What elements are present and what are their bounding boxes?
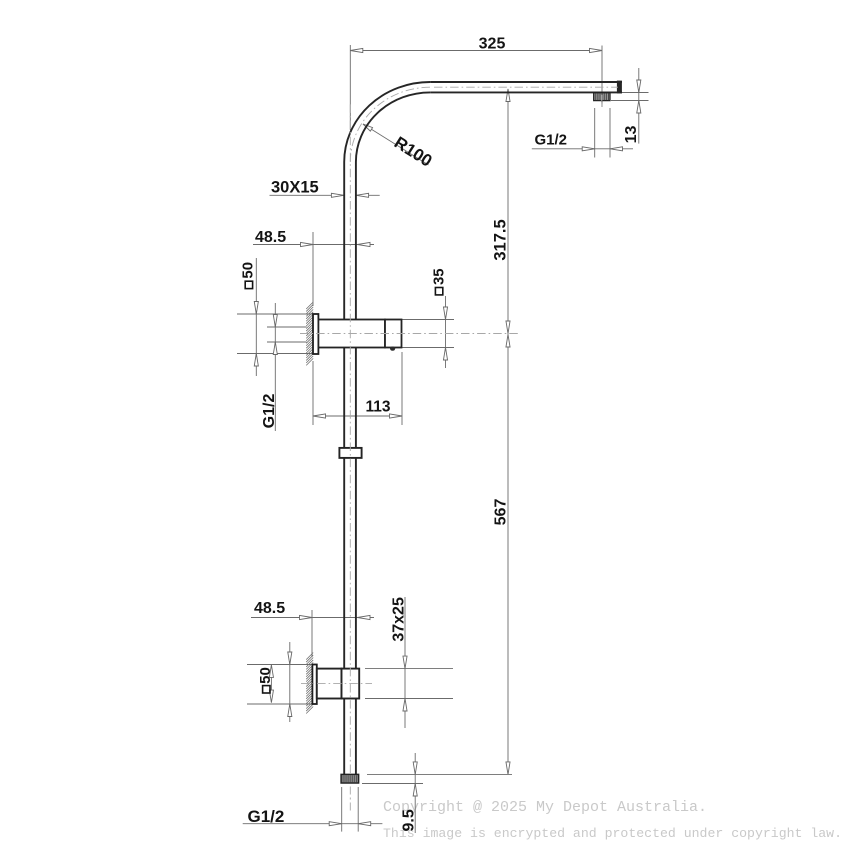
svg-text:113: 113: [365, 399, 390, 416]
svg-text:37x25: 37x25: [390, 597, 407, 642]
svg-text:48.5: 48.5: [254, 600, 285, 617]
svg-text:317.5: 317.5: [491, 219, 509, 260]
svg-text:9.5: 9.5: [401, 809, 418, 831]
svg-text:567: 567: [492, 499, 509, 526]
svg-text:G1/2: G1/2: [248, 807, 285, 826]
svg-text:This image is encrypted and pr: This image is encrypted and protected un…: [383, 826, 842, 841]
svg-text:13: 13: [623, 126, 640, 144]
svg-text:50: 50: [240, 262, 257, 279]
svg-text:48.5: 48.5: [255, 229, 286, 246]
svg-text:30X15: 30X15: [271, 179, 319, 197]
svg-text:G1/2: G1/2: [535, 132, 568, 149]
svg-text:325: 325: [479, 35, 506, 52]
svg-text:G1/2: G1/2: [261, 394, 278, 429]
svg-text:Copyright @ 2025 My Depot Aust: Copyright @ 2025 My Depot Australia.: [383, 799, 707, 816]
svg-text:35: 35: [431, 268, 448, 285]
svg-text:50: 50: [257, 667, 274, 684]
